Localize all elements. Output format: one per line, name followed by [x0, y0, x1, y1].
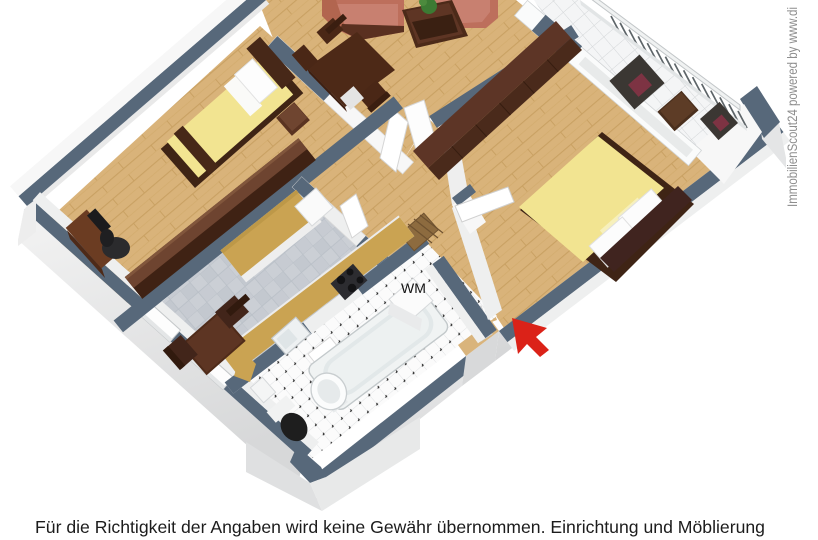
- svg-text:Für die Richtigkeit der Angabe: Für die Richtigkeit der Angaben wird kei…: [35, 517, 765, 537]
- svg-text:WM: WM: [401, 280, 426, 296]
- svg-text:ImmobilienScout24 powered by w: ImmobilienScout24 powered by www.di: [785, 7, 800, 207]
